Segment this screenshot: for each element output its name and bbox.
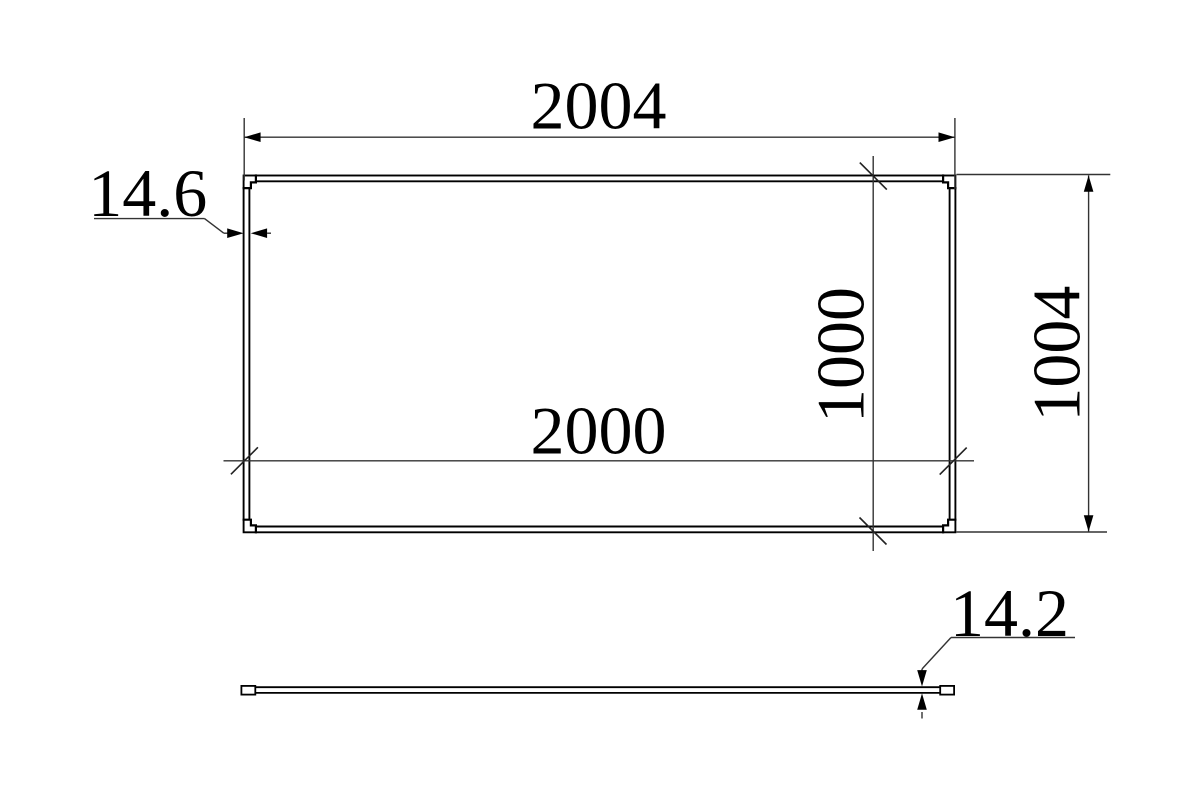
svg-text:2004: 2004	[531, 68, 667, 144]
svg-text:2000: 2000	[531, 393, 667, 469]
svg-text:1004: 1004	[1019, 286, 1095, 422]
svg-text:14.2: 14.2	[950, 575, 1069, 651]
svg-text:1000: 1000	[803, 287, 879, 423]
svg-text:14.6: 14.6	[88, 155, 207, 231]
